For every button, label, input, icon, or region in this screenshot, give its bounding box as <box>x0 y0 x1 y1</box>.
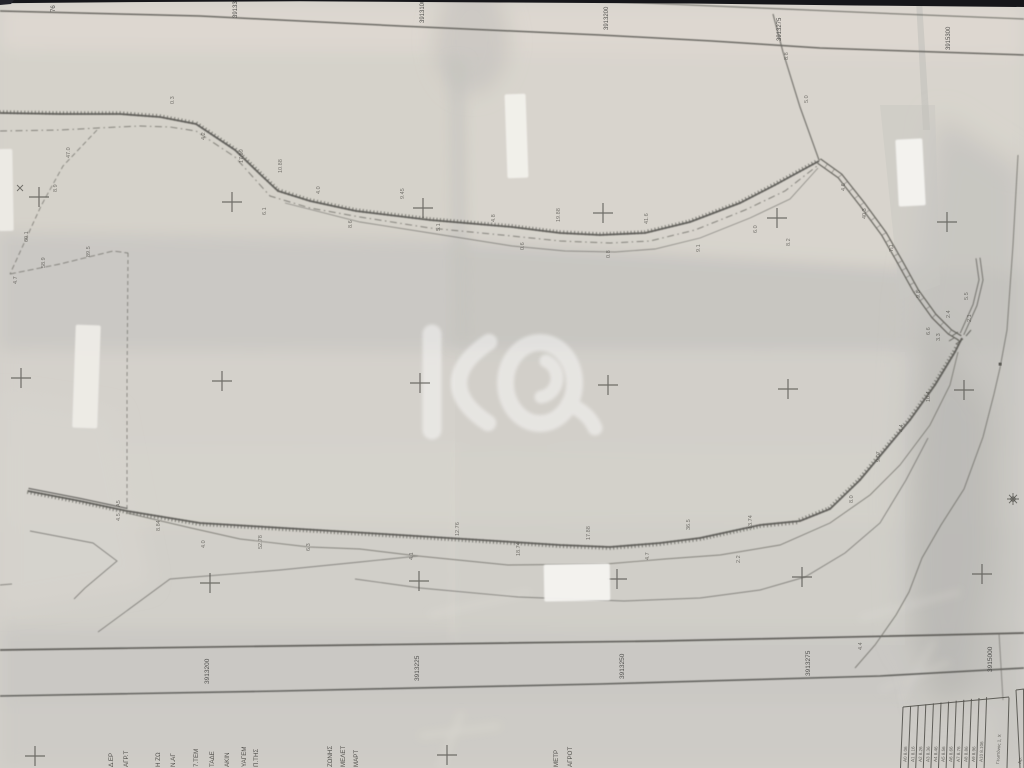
svg-text:5.1: 5.1 <box>436 223 442 231</box>
svg-text:Α0 8.06: Α0 8.06 <box>903 746 909 762</box>
svg-text:47.0: 47.0 <box>66 147 72 158</box>
svg-text:10.88: 10.88 <box>278 159 284 173</box>
svg-text:Α7 8.76: Α7 8.76 <box>956 746 962 762</box>
svg-text:76: 76 <box>51 5 57 12</box>
svg-text:7.ΤΕΜ: 7.ΤΕΜ <box>193 749 200 767</box>
svg-text:13.74: 13.74 <box>748 515 754 529</box>
svg-text:4.6: 4.6 <box>841 183 847 191</box>
svg-text:7.1: 7.1 <box>889 244 895 252</box>
svg-text:9.8: 9.8 <box>916 290 922 298</box>
svg-text:Αρ.: Αρ. <box>1017 757 1022 764</box>
svg-text:52.78: 52.78 <box>258 535 264 549</box>
svg-text:Α9 8.96: Α9 8.96 <box>971 746 977 762</box>
svg-text:0.6: 0.6 <box>520 242 526 250</box>
svg-text:Α3 8.36: Α3 8.36 <box>925 746 931 762</box>
svg-text:3913200: 3913200 <box>204 658 211 684</box>
svg-text:4.2: 4.2 <box>201 132 207 140</box>
svg-text:A5: A5 <box>116 500 122 507</box>
svg-text:Π.ΤΗΣ: Π.ΤΗΣ <box>253 749 260 767</box>
svg-text:8.9: 8.9 <box>53 184 59 192</box>
svg-text:3915300: 3915300 <box>946 26 952 50</box>
svg-text:8.6: 8.6 <box>348 220 354 228</box>
svg-text:Α1 8.16: Α1 8.16 <box>910 746 916 762</box>
svg-text:12.76: 12.76 <box>455 522 461 536</box>
svg-text:17.88: 17.88 <box>586 526 592 540</box>
svg-text:3913300: 3913300 <box>233 0 239 18</box>
svg-text:9.45: 9.45 <box>400 188 406 199</box>
svg-text:Α10 8.106: Α10 8.106 <box>979 741 985 762</box>
svg-text:4.8: 4.8 <box>491 214 497 222</box>
svg-text:6.6: 6.6 <box>926 327 932 335</box>
svg-text:4.1: 4.1 <box>409 552 415 560</box>
svg-text:10.4: 10.4 <box>926 391 932 402</box>
svg-text:3913275: 3913275 <box>777 17 783 41</box>
svg-text:3915000: 3915000 <box>987 646 994 672</box>
svg-text:4.5: 4.5 <box>116 513 122 521</box>
svg-text:8.84: 8.84 <box>156 520 162 531</box>
svg-text:Α4 8.46: Α4 8.46 <box>933 746 939 762</box>
svg-text:3913275: 3913275 <box>805 650 812 676</box>
svg-text:Δ.ΕΡ: Δ.ΕΡ <box>108 753 115 767</box>
svg-text:0.8: 0.8 <box>606 250 612 258</box>
svg-text:2.2: 2.2 <box>736 555 742 563</box>
svg-text:4.0: 4.0 <box>316 186 322 194</box>
svg-text:4.4: 4.4 <box>858 642 864 650</box>
svg-text:58.9: 58.9 <box>41 257 47 268</box>
svg-text:Α2 8.26: Α2 8.26 <box>918 746 924 762</box>
svg-text:36.5: 36.5 <box>686 519 692 530</box>
svg-text:6.0: 6.0 <box>753 225 759 233</box>
svg-text:89.5: 89.5 <box>86 246 92 257</box>
svg-text:9.07: 9.07 <box>876 451 882 462</box>
svg-text:18.74: 18.74 <box>516 542 522 556</box>
svg-text:2.4: 2.4 <box>946 310 952 318</box>
svg-text:40.3: 40.3 <box>862 208 868 219</box>
svg-text:41.6: 41.6 <box>644 213 650 224</box>
svg-text:Α8 8.86: Α8 8.86 <box>963 746 969 762</box>
svg-text:19.88: 19.88 <box>556 208 562 222</box>
svg-text:4.7: 4.7 <box>13 276 19 284</box>
svg-text:ΖΩΝΗΣ: ΖΩΝΗΣ <box>327 746 334 767</box>
svg-text:8.2: 8.2 <box>786 238 792 246</box>
svg-text:9.1: 9.1 <box>696 244 702 252</box>
svg-text:3913225: 3913225 <box>414 655 421 681</box>
svg-text:4.4: 4.4 <box>899 424 905 432</box>
svg-text:ΜΑΡΤ: ΜΑΡΤ <box>353 750 360 767</box>
svg-text:Α6 8.66: Α6 8.66 <box>948 746 954 762</box>
svg-text:Ν.ΑΓ: Ν.ΑΓ <box>170 753 177 767</box>
svg-text:ΑΚΙΝ: ΑΚΙΝ <box>224 753 231 767</box>
svg-text:ΥΑΓΕΜ: ΥΑΓΕΜ <box>241 747 248 767</box>
svg-text:ΜΕΛΕΤ: ΜΕΛΕΤ <box>340 745 347 767</box>
svg-text:17.09: 17.09 <box>239 149 245 163</box>
svg-text:0.3: 0.3 <box>170 96 176 104</box>
svg-text:ΜΕΤΡ: ΜΕΤΡ <box>553 750 560 767</box>
svg-text:60.1: 60.1 <box>24 231 30 242</box>
svg-text:6.1: 6.1 <box>262 207 268 215</box>
svg-text:3913100: 3913100 <box>420 0 426 23</box>
svg-text:Η ΖΩ: Η ΖΩ <box>155 752 162 767</box>
svg-text:4.0: 4.0 <box>201 540 207 548</box>
svg-text:ΑΓΡΟΤ: ΑΓΡΟΤ <box>567 747 574 767</box>
svg-text:5.0: 5.0 <box>804 95 810 103</box>
svg-text:8.8: 8.8 <box>784 52 790 60</box>
svg-text:5.5: 5.5 <box>964 292 970 300</box>
svg-text:3913250: 3913250 <box>619 653 626 679</box>
svg-text:2.1: 2.1 <box>967 314 973 322</box>
svg-text:3.3: 3.3 <box>936 333 942 341</box>
svg-text:Α5 8.56: Α5 8.56 <box>941 746 947 762</box>
svg-text:3913200: 3913200 <box>604 6 610 30</box>
svg-text:ΤΑΔΕ: ΤΑΔΕ <box>209 751 216 767</box>
svg-text:6.3: 6.3 <box>306 543 312 551</box>
svg-text:4.7: 4.7 <box>645 552 651 560</box>
svg-text:8.0: 8.0 <box>849 495 855 503</box>
svg-text:ΑΓΡ.Τ: ΑΓΡ.Τ <box>123 750 130 767</box>
